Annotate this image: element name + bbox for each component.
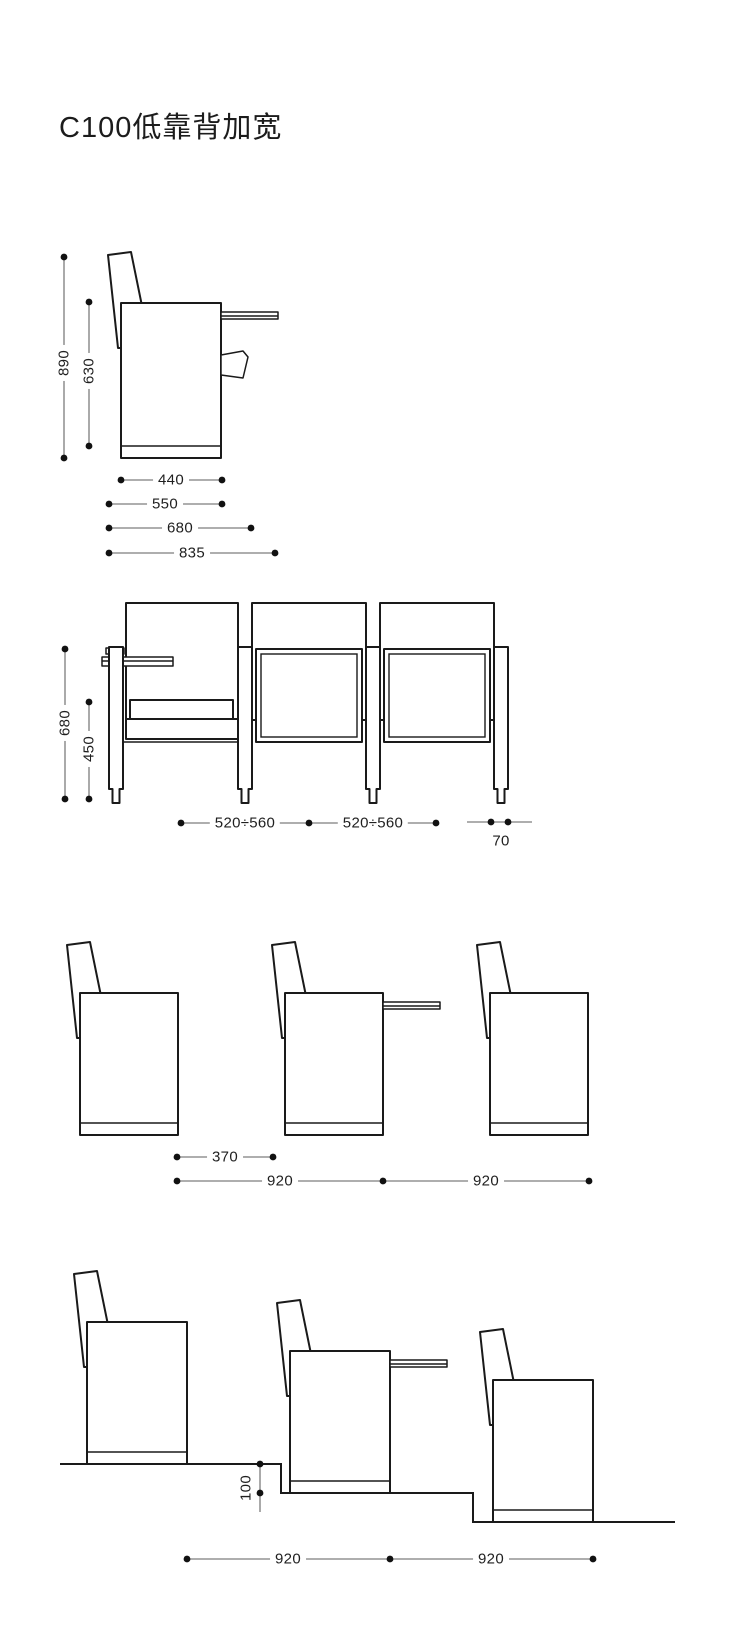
dim-dot — [433, 820, 440, 827]
dim-label-920-a: 920 — [262, 1172, 298, 1191]
dim-dot — [219, 501, 226, 508]
post-leg-1 — [109, 647, 123, 803]
dim-dot — [248, 525, 255, 532]
seat-body-side — [87, 1322, 187, 1464]
dim-label-520-560-a: 520÷560 — [210, 814, 280, 833]
diagram-row-stepped — [60, 1271, 675, 1562]
dim-dot — [270, 1154, 277, 1161]
dim-label-440: 440 — [153, 471, 189, 490]
dim-dot — [86, 299, 93, 306]
folded-tablet-flap — [221, 351, 248, 378]
dim-dot — [219, 477, 226, 484]
post-leg-4 — [494, 647, 508, 803]
dim-label-100: 100 — [237, 1470, 256, 1506]
dim-dot — [86, 699, 93, 706]
dim-dot — [272, 550, 279, 557]
dim-dot — [106, 501, 113, 508]
dim-label-550: 550 — [147, 495, 183, 514]
technical-drawing-page: C100低靠背加宽 — [0, 0, 750, 1652]
dim-label-630: 630 — [80, 353, 99, 389]
dim-label-680: 680 — [162, 519, 198, 538]
dim-dot — [586, 1178, 593, 1185]
diagram-row-flat — [67, 942, 592, 1184]
dim-dot — [306, 820, 313, 827]
dim-dot — [118, 477, 125, 484]
seat-1-cushion-top — [130, 700, 233, 719]
dim-label-370: 370 — [207, 1148, 243, 1167]
post-leg-3 — [366, 647, 380, 803]
dim-dot — [257, 1461, 264, 1468]
seat-body-side — [290, 1351, 390, 1493]
dim-dot — [178, 820, 185, 827]
dim-dot — [62, 646, 69, 653]
dim-dot — [61, 455, 68, 462]
dim-dot — [387, 1556, 394, 1563]
dim-dot — [488, 819, 495, 826]
dim-label-680-front: 680 — [56, 705, 75, 741]
dim-dot — [590, 1556, 597, 1563]
seat-body-side — [285, 993, 383, 1135]
dim-label-920-d: 920 — [473, 1550, 509, 1569]
dim-dot — [257, 1490, 264, 1497]
dim-label-920-c: 920 — [270, 1550, 306, 1569]
seat-1-cushion-bottom — [126, 719, 238, 739]
dim-dot — [184, 1556, 191, 1563]
dim-label-70: 70 — [487, 832, 514, 851]
dim-dot — [505, 819, 512, 826]
dim-label-920-b: 920 — [468, 1172, 504, 1191]
seat-body-side — [80, 993, 178, 1135]
dim-dot — [62, 796, 69, 803]
dim-dot — [86, 796, 93, 803]
dim-label-890: 890 — [55, 345, 74, 381]
dim-dot — [86, 443, 93, 450]
dim-dot — [174, 1178, 181, 1185]
seat-panel-2 — [256, 649, 362, 742]
diagram-front-view — [62, 603, 532, 826]
dim-dot — [380, 1178, 387, 1185]
dim-label-450: 450 — [80, 731, 99, 767]
dim-dot — [174, 1154, 181, 1161]
seat-body-side — [490, 993, 588, 1135]
dim-label-520-560-b: 520÷560 — [338, 814, 408, 833]
seat-body-side — [493, 1380, 593, 1522]
dim-label-835: 835 — [174, 544, 210, 563]
dim-dot — [61, 254, 68, 261]
dim-dot — [106, 550, 113, 557]
seat-panel-3 — [384, 649, 490, 742]
seat-body-side — [121, 303, 221, 458]
post-leg-2 — [238, 647, 252, 803]
dim-dot — [106, 525, 113, 532]
